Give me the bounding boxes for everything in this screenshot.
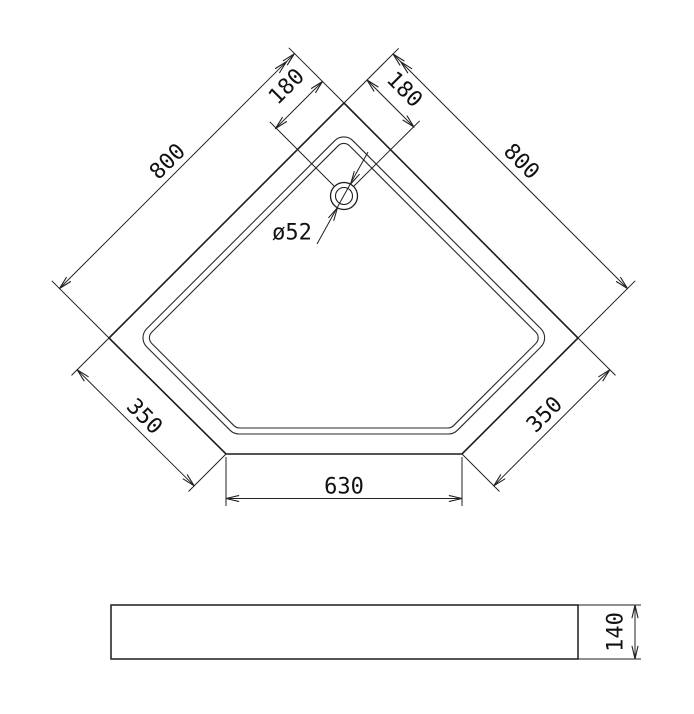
tray-rim-inner [149, 143, 538, 428]
dimension-label-800-left: 800 [145, 139, 191, 185]
dimension-label-140: 140 [604, 612, 629, 652]
extension-line [578, 281, 635, 338]
technical-drawing-page: 800800180180ø52350350630140 [0, 0, 694, 714]
dimension-label-drain-diameter: ø52 [272, 221, 312, 246]
dimension-label-350-left: 350 [121, 394, 167, 440]
dimension-350-left: 350 [72, 338, 227, 492]
side-view-group [111, 605, 578, 659]
dimension-140: 140 [578, 605, 641, 659]
extension-line [270, 122, 335, 187]
dimension-line [317, 152, 368, 244]
side-view-rect [111, 605, 578, 659]
dimension-label-180-left: 180 [264, 64, 310, 110]
shower-tray-technical-drawing: 800800180180ø52350350630140 [0, 0, 694, 714]
extension-line [52, 281, 109, 338]
dimension-label-800-right: 800 [498, 139, 544, 185]
dimension-630: 630 [226, 457, 462, 506]
dimension-drain-diameter: ø52 [272, 152, 368, 246]
dimension-line [60, 54, 295, 289]
dimension-line [77, 370, 194, 486]
extension-line [354, 121, 420, 187]
dimension-800-right: 800 [344, 48, 635, 338]
dimension-label-350-right: 350 [522, 392, 568, 438]
dimension-label-180-right: 180 [381, 67, 427, 113]
dimension-line [494, 370, 610, 486]
dimension-line [393, 54, 628, 289]
dimension-350-right: 350 [462, 338, 616, 492]
dimension-180-right: 180 [354, 67, 427, 186]
dimension-label-630: 630 [324, 475, 364, 500]
tray-rim-outer [143, 137, 545, 434]
